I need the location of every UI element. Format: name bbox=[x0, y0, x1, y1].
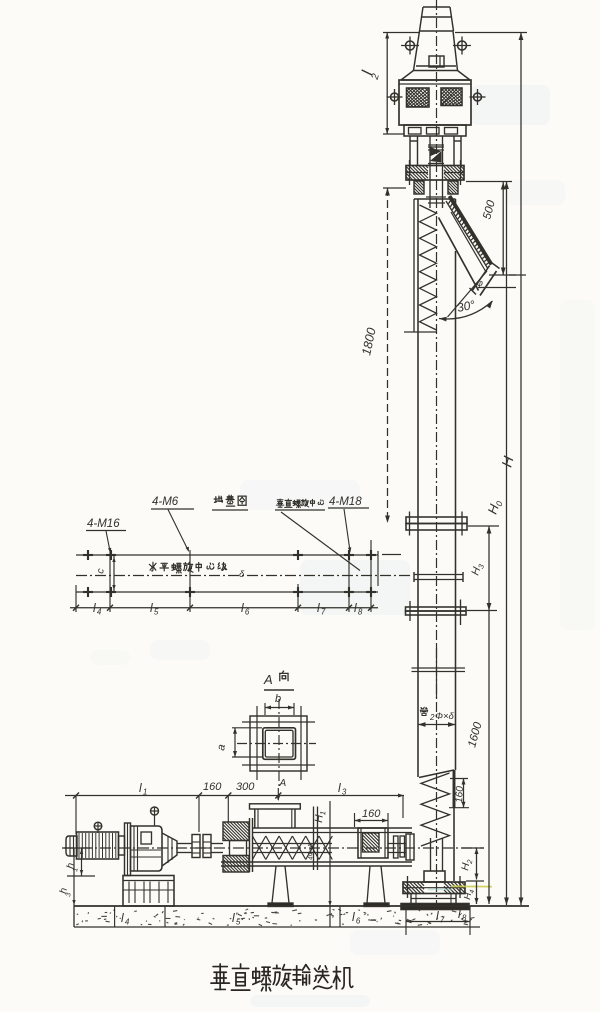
svg-text:b: b bbox=[275, 693, 281, 705]
svg-text:5: 5 bbox=[236, 918, 241, 927]
svg-text:6: 6 bbox=[356, 917, 361, 926]
svg-text:l: l bbox=[354, 601, 357, 615]
svg-text:4: 4 bbox=[125, 918, 130, 927]
svg-text:4: 4 bbox=[97, 608, 102, 617]
svg-text:l: l bbox=[317, 601, 320, 615]
svg-text:300: 300 bbox=[236, 781, 255, 793]
svg-text:l: l bbox=[93, 601, 96, 615]
svg-text:δ: δ bbox=[239, 569, 245, 580]
svg-text:3: 3 bbox=[342, 788, 347, 797]
svg-text:A: A bbox=[279, 778, 287, 789]
svg-text:6: 6 bbox=[245, 608, 250, 617]
svg-text:160: 160 bbox=[362, 808, 381, 820]
svg-text:160: 160 bbox=[203, 781, 222, 793]
svg-text:l: l bbox=[436, 909, 439, 923]
svg-text:1: 1 bbox=[318, 811, 327, 816]
svg-text:l: l bbox=[458, 907, 461, 921]
svg-text:4-M6: 4-M6 bbox=[152, 496, 179, 508]
svg-text:l: l bbox=[139, 781, 142, 795]
svg-text:A: A bbox=[263, 672, 273, 687]
svg-text:4-M16: 4-M16 bbox=[87, 518, 120, 530]
svg-text:Φ×δ: Φ×δ bbox=[435, 711, 454, 722]
svg-text:l: l bbox=[232, 911, 235, 925]
svg-text:1: 1 bbox=[143, 788, 147, 797]
svg-text:8: 8 bbox=[358, 608, 363, 617]
svg-text:7: 7 bbox=[440, 916, 445, 925]
svg-text:160: 160 bbox=[454, 785, 466, 803]
svg-text:l: l bbox=[150, 601, 153, 615]
svg-text:4-M18: 4-M18 bbox=[329, 496, 362, 508]
svg-text:8: 8 bbox=[462, 914, 467, 923]
svg-text:l: l bbox=[338, 781, 341, 795]
svg-text:l: l bbox=[352, 910, 355, 924]
svg-text:5: 5 bbox=[154, 608, 159, 617]
svg-text:l: l bbox=[121, 911, 124, 925]
svg-text:l: l bbox=[241, 601, 244, 615]
svg-text:7: 7 bbox=[321, 608, 326, 617]
svg-text:4Φ×δ: 4Φ×δ bbox=[308, 843, 315, 860]
